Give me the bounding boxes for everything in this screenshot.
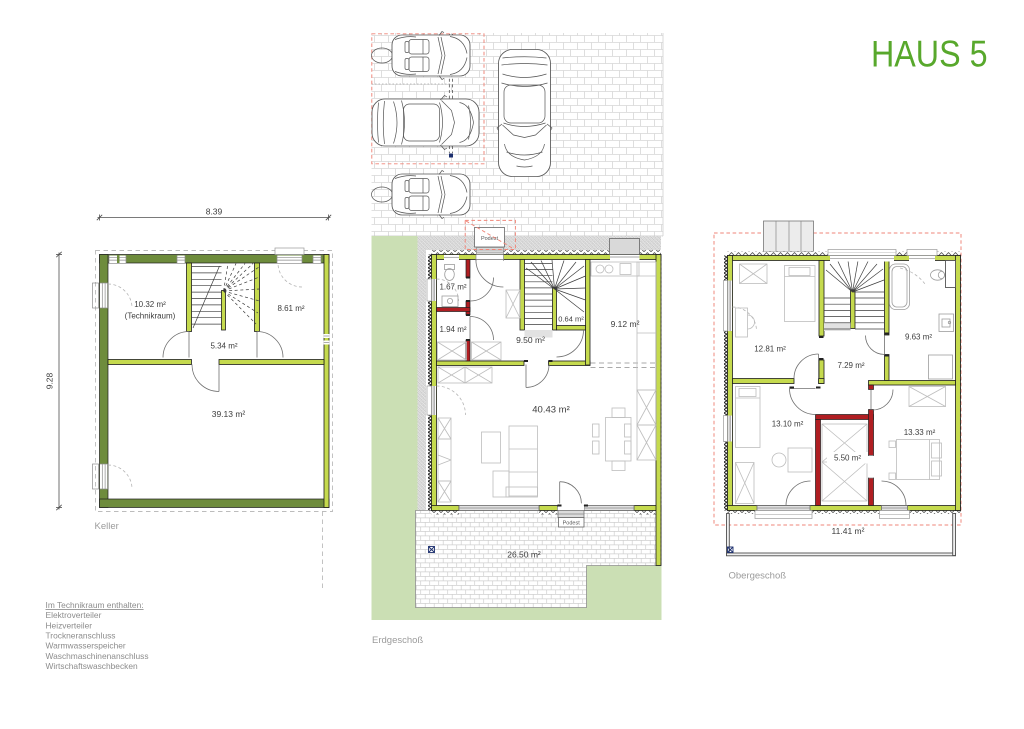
- svg-text:Heizverteiler: Heizverteiler: [46, 620, 93, 630]
- svg-text:8.39: 8.39: [206, 207, 223, 217]
- svg-text:Obergeschoß: Obergeschoß: [729, 571, 787, 582]
- svg-text:Podest: Podest: [481, 236, 499, 242]
- svg-text:Erdgeschoß: Erdgeschoß: [372, 635, 423, 646]
- svg-text:Waschmaschinenanschluss: Waschmaschinenanschluss: [46, 651, 149, 661]
- svg-text:0.64 m²: 0.64 m²: [558, 315, 584, 324]
- svg-text:5.34 m²: 5.34 m²: [210, 342, 237, 351]
- svg-text:9.28: 9.28: [45, 372, 55, 389]
- svg-text:Wirtschaftswaschbecken: Wirtschaftswaschbecken: [46, 661, 138, 671]
- svg-text:Trockneranschluss: Trockneranschluss: [46, 631, 116, 641]
- svg-text:1.94 m²: 1.94 m²: [439, 325, 466, 334]
- svg-text:12.81 m²: 12.81 m²: [754, 345, 786, 354]
- svg-text:7.29 m²: 7.29 m²: [837, 361, 864, 370]
- svg-text:26.50 m²: 26.50 m²: [507, 550, 541, 560]
- svg-text:9.50 m²: 9.50 m²: [516, 335, 545, 345]
- svg-text:Warmwasserspeicher: Warmwasserspeicher: [46, 641, 126, 651]
- svg-text:Im Technikraum enthalten:: Im Technikraum enthalten:: [46, 600, 144, 610]
- svg-text:13.10 m²: 13.10 m²: [772, 420, 804, 429]
- svg-text:5.50 m²: 5.50 m²: [834, 454, 861, 463]
- svg-text:Elektroverteiler: Elektroverteiler: [46, 610, 102, 620]
- svg-text:9.63 m²: 9.63 m²: [905, 333, 932, 342]
- svg-text:1.67 m²: 1.67 m²: [439, 283, 466, 292]
- svg-text:39.13 m²: 39.13 m²: [212, 409, 246, 419]
- svg-text:Podest: Podest: [563, 521, 581, 527]
- svg-text:Keller: Keller: [95, 521, 119, 532]
- svg-text:11.41 m²: 11.41 m²: [832, 526, 865, 536]
- svg-text:40.43 m²: 40.43 m²: [532, 405, 570, 416]
- svg-text:HAUS 5: HAUS 5: [871, 34, 988, 75]
- svg-text:13.33 m²: 13.33 m²: [904, 428, 936, 437]
- svg-text:10.32 m²: 10.32 m²: [134, 300, 166, 309]
- svg-text:8.61 m²: 8.61 m²: [277, 304, 304, 313]
- svg-text:(Technikraum): (Technikraum): [125, 312, 176, 321]
- svg-text:9.12 m²: 9.12 m²: [611, 319, 640, 329]
